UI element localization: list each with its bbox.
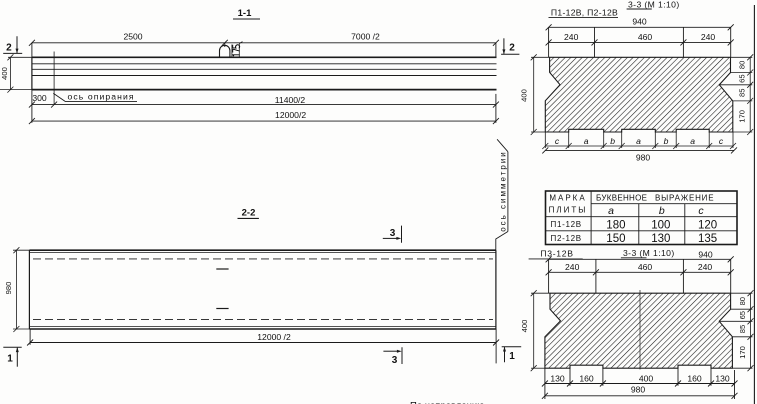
svg-text:П1-12В, П2-12В: П1-12В, П2-12В — [551, 7, 618, 17]
svg-text:c: c — [698, 205, 704, 217]
svg-text:160: 160 — [579, 373, 594, 383]
svg-text:а: а — [690, 136, 695, 146]
svg-text:240: 240 — [565, 262, 580, 272]
svg-text:65: 65 — [738, 311, 747, 319]
svg-text:2: 2 — [6, 43, 12, 54]
svg-text:3-3 (М 1:10): 3-3 (М 1:10) — [623, 248, 675, 258]
svg-text:3-3 (М 1:10): 3-3 (М 1:10) — [628, 0, 680, 9]
svg-text:400: 400 — [0, 67, 9, 80]
svg-text:120: 120 — [698, 219, 717, 231]
svg-text:240: 240 — [564, 32, 579, 42]
svg-text:980: 980 — [4, 282, 13, 295]
svg-text:ВЫРАЖЕНИЕ: ВЫРАЖЕНИЕ — [655, 193, 714, 202]
svg-text:П3-12В: П3-12В — [540, 249, 573, 259]
svg-text:3: 3 — [390, 228, 396, 239]
svg-text:b: b — [659, 205, 665, 217]
svg-text:ось симметрии: ось симметрии — [499, 150, 508, 232]
svg-text:11400/2: 11400/2 — [275, 95, 306, 105]
svg-text:с: с — [719, 136, 724, 146]
svg-text:240: 240 — [701, 32, 716, 42]
svg-text:БУКВЕННОЕ: БУКВЕННОЕ — [596, 193, 647, 202]
svg-text:12000/2: 12000/2 — [275, 110, 306, 120]
svg-text:400: 400 — [520, 320, 529, 333]
svg-text:По направлению: По направлению — [410, 401, 484, 404]
svg-text:130: 130 — [651, 233, 670, 245]
svg-text:ПЛИТЫ: ПЛИТЫ — [549, 205, 588, 214]
svg-text:940: 940 — [698, 250, 713, 260]
svg-text:980: 980 — [636, 152, 651, 162]
svg-text:П1-12В: П1-12В — [551, 220, 582, 229]
svg-text:85: 85 — [738, 325, 747, 333]
svg-text:с: с — [555, 136, 560, 146]
svg-text:160: 160 — [687, 373, 702, 383]
svg-text:460: 460 — [638, 262, 653, 272]
svg-text:100: 100 — [651, 219, 670, 231]
svg-text:1: 1 — [509, 351, 515, 362]
svg-text:170: 170 — [738, 110, 747, 123]
svg-text:b: b — [664, 136, 669, 146]
svg-text:130: 130 — [550, 373, 565, 383]
svg-text:460: 460 — [638, 32, 653, 42]
svg-text:1: 1 — [7, 354, 13, 365]
svg-text:135: 135 — [698, 233, 717, 245]
svg-text:МАРКА: МАРКА — [549, 193, 586, 202]
svg-text:400: 400 — [639, 373, 654, 383]
svg-text:12000 /2: 12000 /2 — [257, 332, 291, 342]
svg-text:400: 400 — [520, 89, 529, 102]
svg-text:1-1: 1-1 — [238, 8, 252, 19]
svg-text:980: 980 — [631, 385, 646, 395]
svg-text:а: а — [636, 136, 641, 146]
svg-text:b: b — [610, 136, 615, 146]
svg-text:940: 940 — [632, 16, 647, 26]
svg-text:П2-12В: П2-12В — [551, 234, 582, 243]
svg-text:150: 150 — [606, 233, 625, 245]
svg-text:7000 /2: 7000 /2 — [351, 32, 380, 42]
svg-text:2: 2 — [509, 43, 515, 54]
svg-text:2500: 2500 — [123, 32, 142, 42]
svg-text:2-2: 2-2 — [242, 208, 256, 219]
svg-text:а: а — [584, 136, 589, 146]
svg-text:180: 180 — [606, 219, 625, 231]
svg-text:80: 80 — [738, 297, 747, 305]
svg-text:80: 80 — [738, 61, 747, 69]
svg-text:65: 65 — [738, 74, 747, 82]
svg-text:3: 3 — [392, 355, 398, 366]
svg-text:ось опирания: ось опирания — [68, 92, 135, 102]
svg-text:a: a — [608, 205, 614, 217]
svg-text:85: 85 — [738, 89, 747, 97]
svg-text:130: 130 — [715, 373, 730, 383]
svg-text:170: 170 — [738, 346, 747, 359]
svg-text:240: 240 — [698, 262, 713, 272]
